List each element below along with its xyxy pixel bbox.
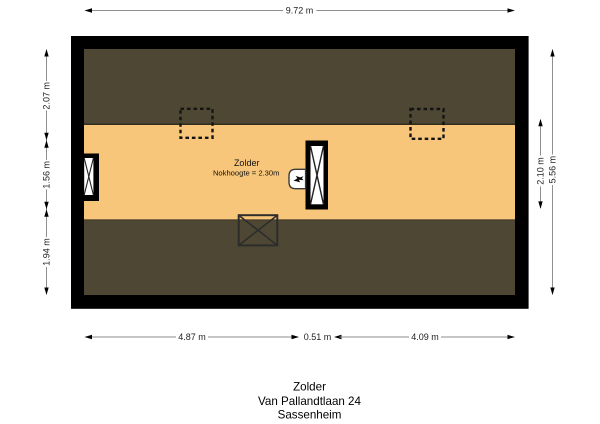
svg-text:2.10 m: 2.10 m [536, 157, 546, 185]
svg-text:Zolder: Zolder [234, 158, 260, 168]
svg-text:Nokhoogte = 2.30m: Nokhoogte = 2.30m [213, 169, 280, 178]
svg-text:0.51 m: 0.51 m [304, 332, 332, 342]
svg-text:1.94 m: 1.94 m [42, 238, 52, 266]
svg-text:Sassenheim: Sassenheim [278, 409, 342, 422]
svg-text:2.07 m: 2.07 m [42, 82, 52, 110]
svg-text:5.56 m: 5.56 m [548, 156, 558, 184]
svg-text:4.87 m: 4.87 m [178, 332, 206, 342]
svg-text:1.56 m: 1.56 m [42, 161, 52, 189]
svg-text:9.72 m: 9.72 m [286, 6, 314, 16]
svg-text:Van Pallandtlaan 24: Van Pallandtlaan 24 [258, 395, 361, 408]
svg-text:4.09 m: 4.09 m [411, 332, 439, 342]
svg-text:Zolder: Zolder [293, 381, 326, 394]
